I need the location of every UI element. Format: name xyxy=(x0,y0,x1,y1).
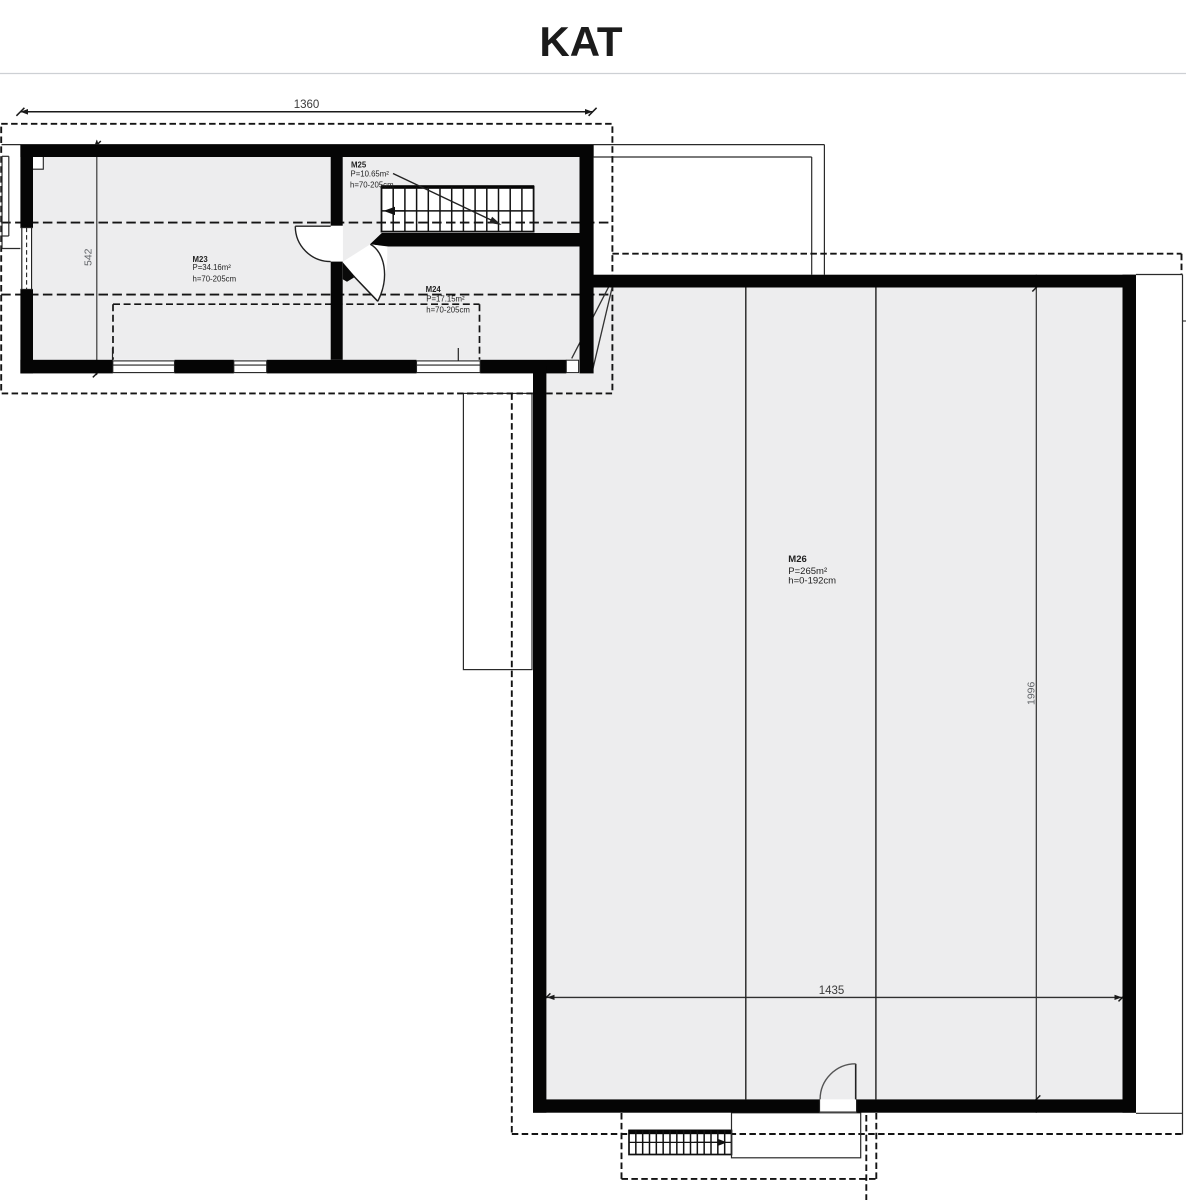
svg-text:h=70-205cm: h=70-205cm xyxy=(426,305,470,314)
svg-text:P=10.65m²: P=10.65m² xyxy=(351,169,390,178)
svg-text:KAT: KAT xyxy=(539,18,623,65)
svg-text:h=70-205cm: h=70-205cm xyxy=(193,275,237,284)
svg-text:h=70-205cm: h=70-205cm xyxy=(350,181,394,190)
svg-text:M25: M25 xyxy=(351,161,367,170)
svg-text:M24: M24 xyxy=(426,285,442,294)
svg-text:1996: 1996 xyxy=(1026,681,1038,705)
svg-text:P=34.16m²: P=34.16m² xyxy=(193,263,232,272)
svg-text:P=17.15m²: P=17.15m² xyxy=(426,294,465,303)
svg-text:M26: M26 xyxy=(788,554,806,565)
svg-text:1435: 1435 xyxy=(819,985,845,997)
svg-text:1360: 1360 xyxy=(294,99,320,111)
svg-text:542: 542 xyxy=(83,248,95,266)
svg-text:h=0-192cm: h=0-192cm xyxy=(788,576,836,587)
